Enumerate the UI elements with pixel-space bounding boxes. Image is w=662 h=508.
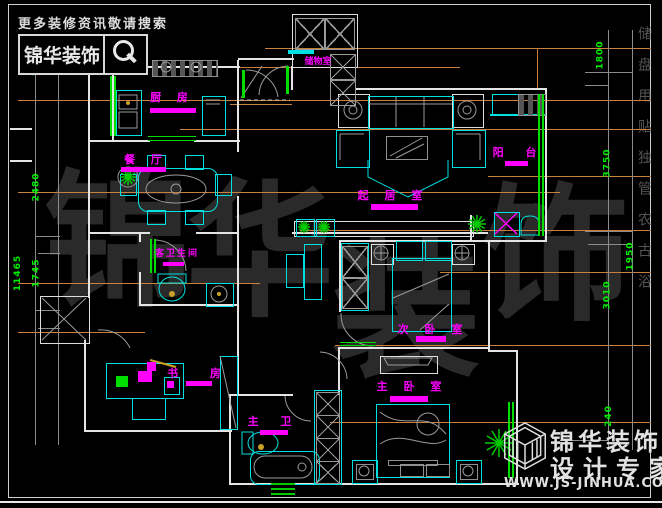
- floorplan-canvas: 锦 华 装 饰 储盘用贴独管农古浴 厨 房 餐 厅 起 居 室 阳 台 储物室 …: [0, 0, 662, 508]
- room-label-study: 书 房: [167, 365, 235, 381]
- plant-icons: [120, 169, 513, 457]
- room-label-underline: [416, 336, 446, 342]
- door-swing-arcs: [98, 66, 373, 421]
- room-label-underline: [390, 396, 428, 402]
- window-door-line: [242, 70, 245, 98]
- room-label-underline: [150, 108, 196, 113]
- window-door-line: [114, 76, 116, 136]
- cube-logo-icon: [502, 420, 548, 472]
- room-label-living: 起 居 室: [358, 187, 429, 203]
- brand-logo-name: 锦华装饰: [20, 41, 103, 68]
- window-door-line: [150, 239, 152, 273]
- room-label-master-bath: 主 卫: [248, 413, 301, 429]
- window-door-line: [148, 140, 196, 141]
- window-door-line: [286, 66, 289, 94]
- room-label-storage: 储物室: [304, 54, 331, 67]
- study-desk-item: [167, 381, 174, 388]
- window-door-line: [340, 345, 376, 346]
- window-door-line: [340, 342, 376, 343]
- search-hint-text: 更多装修资讯敬请搜索: [18, 13, 168, 32]
- room-label-underline: [371, 204, 418, 210]
- cyan-fixtures: [158, 160, 539, 454]
- window-door-line: [110, 76, 112, 136]
- footer-brand-block: 锦华装饰 设计专家 WWW.JS-JINHUA.COM: [502, 420, 658, 476]
- window-door-line: [542, 94, 544, 236]
- window-door-line: [538, 94, 540, 236]
- room-label-underline: [163, 262, 184, 266]
- study-chair-figure: [138, 371, 152, 382]
- room-label-kitchen: 厨 房: [150, 89, 194, 105]
- room-label-guest-bath: 客卫生间: [155, 246, 199, 259]
- study-chair-figure: [147, 362, 156, 371]
- window-door-line: [148, 136, 196, 137]
- brand-logo-box: 锦华装饰: [18, 34, 148, 75]
- room-label-underline: [505, 161, 528, 166]
- magnifier-icon: [105, 36, 143, 73]
- room-label-balcony: 阳 台: [493, 144, 546, 160]
- room-label-underline: [121, 167, 166, 172]
- footer-brand-url: WWW.JS-JINHUA.COM: [504, 476, 662, 491]
- room-label-master-bedroom: 主 卧 室: [377, 378, 448, 394]
- room-label-underline: [260, 430, 288, 435]
- room-label-underline: [186, 381, 212, 386]
- room-label-dining: 餐 厅: [124, 151, 168, 167]
- washer-x-symbol: [495, 213, 517, 234]
- room-label-second-bedroom: 次 卧 室: [398, 321, 469, 337]
